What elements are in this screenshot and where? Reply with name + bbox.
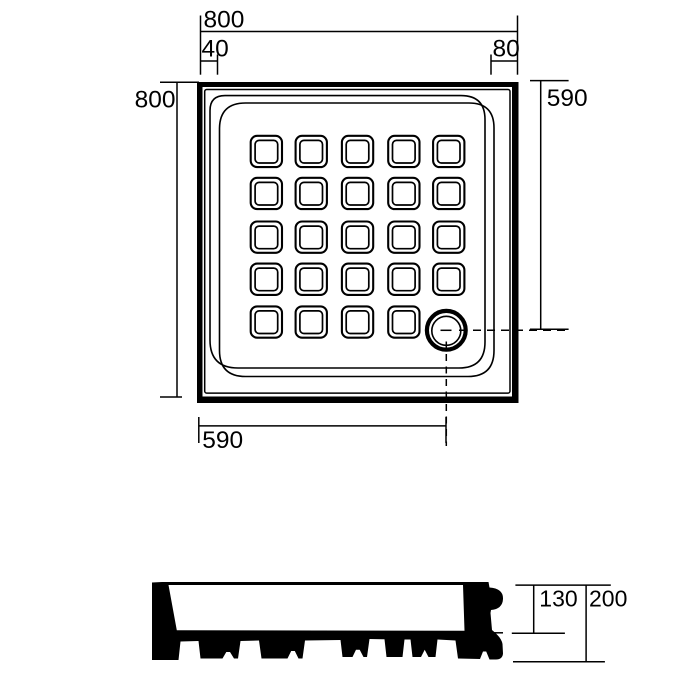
svg-text:130: 130 bbox=[539, 586, 577, 612]
svg-text:590: 590 bbox=[547, 85, 588, 112]
svg-text:40: 40 bbox=[202, 35, 229, 62]
svg-text:80: 80 bbox=[493, 35, 520, 62]
svg-text:800: 800 bbox=[135, 86, 176, 113]
svg-text:590: 590 bbox=[202, 427, 243, 454]
svg-text:800: 800 bbox=[204, 7, 245, 34]
svg-text:200: 200 bbox=[589, 586, 627, 612]
